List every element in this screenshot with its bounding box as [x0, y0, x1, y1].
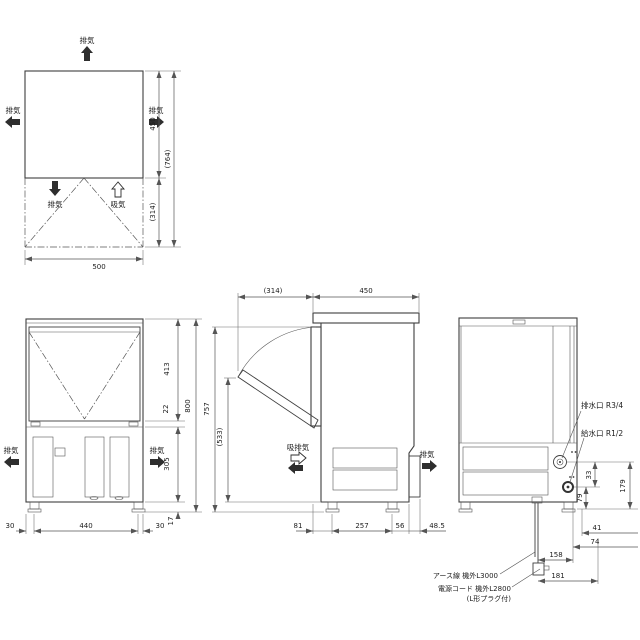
left-exhaust-label: 排気 [6, 105, 21, 115]
dim-height-800: 800 [184, 399, 192, 412]
door-swing-arc [238, 327, 316, 377]
drain-port-label: 排水口 R3/4 [581, 400, 623, 410]
dim-leg-pitch-257: 257 [355, 522, 368, 530]
dim-front-leg-81: 81 [294, 522, 303, 530]
inner-intake-label: 吸気 [111, 199, 126, 209]
front-right-exhaust-label: 排気 [150, 445, 165, 455]
front-left-exhaust-label: 排気 [4, 445, 19, 455]
technical-drawing-page: 排気 排気 排気 排気 吸気 450 (764) (314) 500 [0, 0, 640, 640]
dim-width-440: 440 [79, 522, 92, 530]
dim-depth-450: 450 [149, 117, 157, 130]
dim-rear-duct-48-5: 48.5 [429, 522, 445, 530]
dim-port-pitch-33: 33 [585, 471, 593, 480]
rear-legs [459, 502, 575, 512]
rear-view-extension-lines [567, 462, 638, 584]
water-supply-port [563, 482, 573, 492]
intake-up-arrow-icon [112, 182, 124, 197]
dim-total-depth-764: (764) [164, 149, 172, 168]
front-view-cabinet-outline [26, 319, 143, 502]
power-cord-note-label: (L形プラグ付) [467, 594, 512, 603]
side-rear-duct [409, 456, 420, 497]
side-view-body-outline [321, 323, 414, 502]
dim-width-500: 500 [92, 263, 105, 271]
dim-side-height-757: 757 [203, 402, 211, 415]
power-cord-and-earth-wire [533, 503, 549, 575]
rear-view: 排水口 R3/4 給水口 R1/2 アース線 機外L3000 電源コード 機外L… [433, 318, 638, 603]
front-view: 排気 排気 413 22 800 [4, 319, 203, 534]
dim-rear-leg-56: 56 [396, 522, 405, 530]
dim-side-right-30: 30 [156, 522, 165, 530]
front-legs [28, 502, 145, 512]
side-top-panel [313, 313, 419, 323]
dim-supply-height-79: 79 [576, 494, 584, 503]
top-view: 排気 排気 排気 排気 吸気 450 (764) (314) 500 [5, 35, 181, 271]
intake-right-arrow-icon [291, 452, 306, 464]
side-rear-exhaust-label: 排気 [420, 449, 435, 459]
power-cord-label: 電源コード 機外L2800 [438, 584, 511, 593]
plug [533, 563, 544, 575]
supply-port-label: 給水口 R1/2 [581, 428, 623, 438]
dim-offset-74: 74 [591, 538, 600, 546]
side-door-closed [311, 327, 321, 426]
exhaust-down-arrow-icon [49, 181, 61, 196]
side-legs [326, 502, 399, 512]
dim-divider-22: 22 [162, 405, 170, 414]
dim-base-305: 305 [163, 457, 171, 470]
right-exhaust-label: 排気 [149, 105, 164, 115]
dim-door-height-413: 413 [163, 362, 171, 375]
exhaust-up-arrow-icon [81, 46, 93, 61]
dim-side-depth-450: 450 [359, 287, 372, 295]
dim-door-open-314: (314) [149, 202, 157, 221]
side-door-open [238, 370, 318, 428]
side-exhaust-right-arrow-icon [422, 460, 437, 472]
dim-offset-181: 181 [551, 572, 564, 580]
inner-exhaust-label: 排気 [48, 199, 63, 209]
side-view: 吸排気 排気 [203, 287, 446, 534]
rear-view-cabinet-outline [459, 318, 577, 502]
dim-open-height-533: (533) [216, 427, 224, 446]
dim-offset-41: 41 [593, 524, 602, 532]
dim-offset-158: 158 [549, 551, 562, 559]
top-exhaust-label: 排気 [80, 35, 95, 45]
exhaust-left-arrow-icon [5, 116, 20, 128]
dim-side-left-30: 30 [6, 522, 15, 530]
ice-machine-dimension-drawing: 排気 排気 排気 排気 吸気 450 (764) (314) 500 [0, 0, 640, 640]
side-intake-exhaust-label: 吸排気 [287, 442, 310, 452]
top-view-door-projection-lines [25, 178, 143, 247]
exhaust-left-arrow2-icon [288, 462, 303, 474]
top-view-cabinet-outline [25, 71, 143, 178]
earth-wire-label: アース線 機外L3000 [433, 571, 498, 580]
dim-drain-height-179: 179 [619, 479, 627, 492]
dim-leg-17: 17 [167, 517, 175, 526]
front-exhaust-left-arrow-icon [4, 456, 19, 468]
dim-side-door-open-314: (314) [264, 287, 283, 295]
